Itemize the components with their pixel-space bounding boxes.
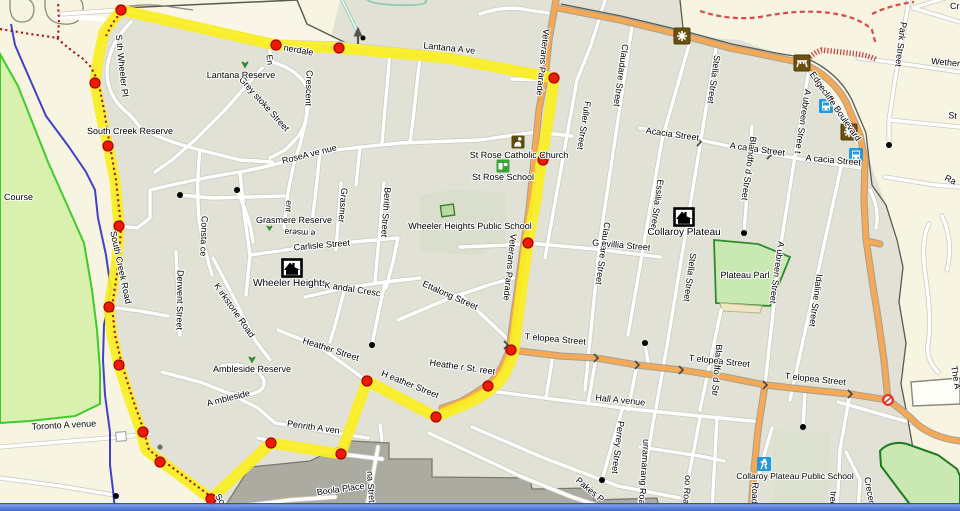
svg-text:Wheeler Heights: Wheeler Heights	[253, 278, 327, 289]
svg-text:Derwent Street: Derwent Street	[174, 270, 185, 331]
svg-text:Grasmere Reserve: Grasmere Reserve	[256, 215, 332, 225]
svg-text:ent: ent	[283, 200, 294, 213]
svg-text:Collaroy Plateau Public School: Collaroy Plateau Public School	[736, 471, 854, 481]
svg-text:Consta ce: Consta ce	[198, 216, 209, 257]
svg-text:St Rose Catholic Church: St Rose Catholic Church	[470, 150, 569, 160]
svg-text:Cr: Cr	[950, 1, 960, 11]
svg-text:St: St	[948, 110, 958, 121]
svg-text:Course: Course	[4, 192, 33, 202]
svg-text:Road: Road	[750, 482, 761, 504]
svg-text:Lantana Reserve: Lantana Reserve	[207, 70, 276, 80]
svg-text:South Creek Reserve: South Creek Reserve	[87, 126, 173, 136]
svg-text:e mseɹǝ: e mseɹǝ	[284, 227, 315, 239]
svg-text:Wheeler Heights Public School: Wheeler Heights Public School	[408, 221, 532, 231]
svg-text:St Rose School: St Rose School	[472, 172, 534, 182]
svg-text:En: En	[265, 54, 276, 66]
svg-text:Collaroy Plateau: Collaroy Plateau	[647, 227, 720, 238]
svg-text:Crescent: Crescent	[303, 70, 314, 107]
svg-text:Plateau Parl: Plateau Parl	[720, 270, 769, 280]
svg-text:Ambleside Reserve: Ambleside Reserve	[213, 364, 291, 374]
